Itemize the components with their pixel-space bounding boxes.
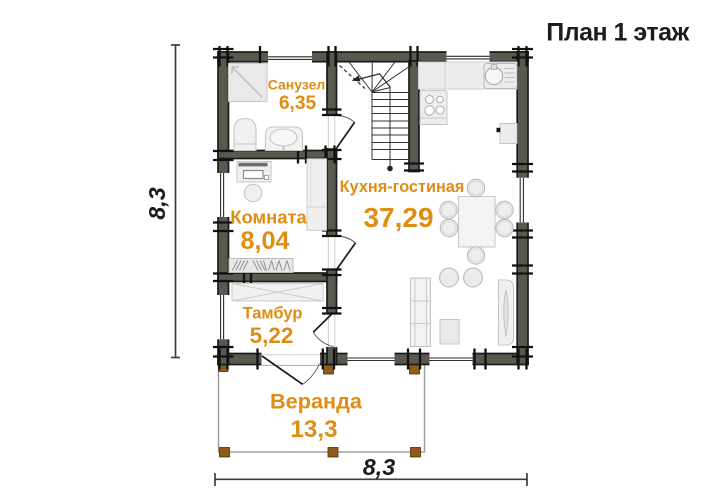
svg-text:13,3: 13,3 — [290, 416, 337, 443]
svg-text:8,3: 8,3 — [363, 454, 395, 480]
svg-text:Кухня-гостиная: Кухня-гостиная — [340, 178, 465, 196]
svg-text:6,35: 6,35 — [279, 93, 317, 114]
svg-text:Санузел: Санузел — [268, 77, 326, 93]
svg-text:8,3: 8,3 — [144, 187, 170, 219]
svg-text:Комната: Комната — [230, 206, 307, 227]
svg-text:5,22: 5,22 — [250, 323, 294, 348]
svg-text:Тамбур: Тамбур — [243, 305, 303, 323]
svg-text:37,29: 37,29 — [363, 202, 433, 233]
svg-text:Веранда: Веранда — [270, 388, 363, 413]
svg-text:8,04: 8,04 — [240, 227, 289, 255]
svg-text:План 1 этаж: План 1 этаж — [546, 18, 689, 46]
